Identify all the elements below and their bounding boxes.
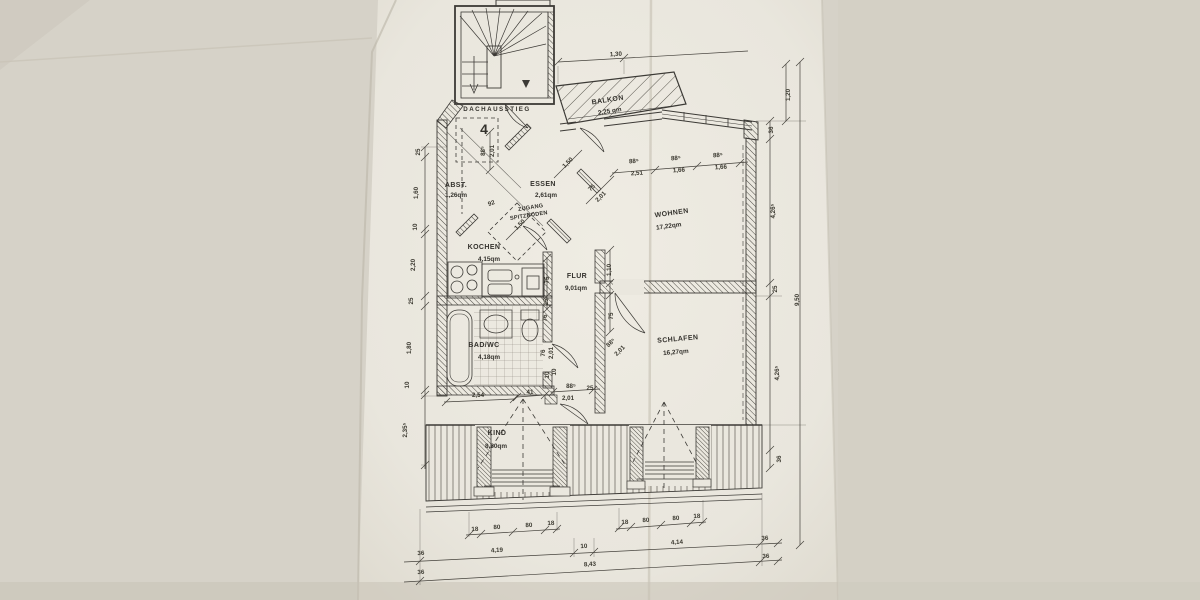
dim-left-1: 1,60 — [413, 186, 420, 199]
dim-wohnen-n: 1,10 — [606, 263, 613, 276]
dim-win-w2: 1,66 — [673, 167, 686, 175]
dim-right-3: 4,26⁵ — [774, 365, 781, 380]
dim-bs-1: 4,19 — [491, 547, 504, 555]
room-kind: KIND — [488, 430, 507, 437]
area-kind: 8,60qm — [485, 443, 507, 450]
area-flur: 9,01qm — [565, 285, 587, 292]
dim-win-w3: 1,66 — [715, 164, 728, 172]
area-kochen: 4,15qm — [478, 256, 500, 263]
dim-bs-3: 4,14 — [671, 539, 684, 547]
dim-wohnen-s: 75 — [608, 312, 615, 319]
dim-dl-2: 80 — [525, 522, 533, 529]
dim-dr-0: 18 — [621, 519, 629, 526]
dim-bt-1: 8,43 — [584, 561, 597, 569]
dim-flur-w: 75 — [544, 276, 551, 283]
dim-right-0: 36 — [768, 126, 775, 133]
stair-label: DACHAUSSTIEG — [463, 106, 531, 113]
left-outer-wall — [437, 120, 447, 396]
dim-dr-1: 80 — [642, 517, 650, 524]
dim-bs-0: 36 — [417, 550, 425, 557]
dim-dl-0: 18 — [471, 526, 479, 533]
room-essen: ESSEN — [530, 181, 556, 188]
dim-right-4: 36 — [776, 455, 783, 462]
schlafen-door-gap — [613, 279, 644, 295]
dim-top-width: 1,30 — [610, 51, 623, 59]
dim-left-6: 10 — [404, 381, 411, 388]
kind-wall-stub — [545, 395, 557, 404]
dormer2-pier-right — [696, 427, 709, 483]
flur-wall-lower — [595, 293, 605, 413]
dim-bs-4: 36 — [761, 535, 769, 542]
dim-kind-n: 25 — [587, 385, 594, 392]
dim-bt-2: 36 — [762, 553, 770, 560]
dim-left-4: 25 — [408, 297, 415, 304]
photo-of-floorplan: DACHAUSSTIEG 4 BALKON 2,25 qm ABST. 1,26… — [0, 0, 1200, 600]
flur-wall-upper — [595, 250, 605, 283]
dormer2-pier-left — [630, 427, 643, 483]
dim-total-height: 9,50 — [794, 293, 801, 306]
dim-baddoor-h: 2,01 — [548, 346, 555, 359]
dim-dr-3: 18 — [693, 513, 701, 520]
room-bad: BAD/WC — [468, 342, 499, 349]
dim-left-7: 2,35⁵ — [402, 422, 409, 437]
area-bad: 4,18qm — [478, 354, 500, 361]
room-flur: FLUR — [567, 273, 587, 280]
dim-left-2: 10 — [412, 223, 419, 230]
dim-win-w1: 2,51 — [631, 170, 644, 178]
room-abst: ABST. — [445, 182, 467, 189]
dim-bs-2: 10 — [580, 543, 588, 550]
dim-dl-1: 80 — [493, 524, 501, 531]
dim-baddoor-w: 76 — [540, 349, 547, 356]
dim-bad-s: 10 — [544, 371, 551, 378]
dim-win-h3: 88⁵ — [713, 152, 723, 160]
dim-kinddoor-h: 2,01 — [562, 395, 575, 402]
area-abst: 1,26qm — [445, 192, 467, 199]
bath-bottom-wall — [437, 386, 554, 395]
dim-left-3: 2,20 — [410, 258, 417, 271]
area-essen: 2,61qm — [535, 192, 557, 199]
floorplan-canvas: DACHAUSSTIEG 4 BALKON 2,25 qm ABST. 1,26… — [0, 0, 1200, 600]
room-kochen: KOCHEN — [468, 244, 501, 251]
dim-254: 2,54 — [472, 392, 485, 399]
dim-41: 41 — [527, 389, 534, 396]
dim-bad-n: 76 — [542, 314, 549, 321]
dim-win-h2: 88⁵ — [671, 155, 681, 163]
dim-kinddoor-w: 88⁵ — [566, 383, 576, 390]
bath-wall-upper — [543, 305, 552, 342]
dim-left-0: 25 — [415, 148, 422, 155]
dim-kind-s: 10 — [551, 368, 558, 375]
dim-flur-n: 25 — [543, 298, 550, 305]
dim-left-5: 1,80 — [406, 341, 413, 354]
dim-bt-0: 36 — [417, 569, 425, 576]
dim-right-2: 25 — [772, 285, 779, 292]
dim-dl-3: 18 — [547, 520, 555, 527]
dim-win-h1: 88⁵ — [629, 158, 639, 166]
dim-dr-2: 80 — [672, 515, 680, 522]
unit-number: 4 — [480, 121, 488, 137]
right-margin — [838, 0, 1200, 600]
dormer1-pier-right — [553, 427, 567, 487]
dim-stairdoor-h: 2,01 — [489, 144, 496, 157]
dim-right-1: 4,26⁵ — [770, 203, 777, 218]
dim-balcony-depth: 1,20 — [785, 88, 792, 101]
dim-stairdoor-w: 88⁵ — [480, 146, 487, 156]
